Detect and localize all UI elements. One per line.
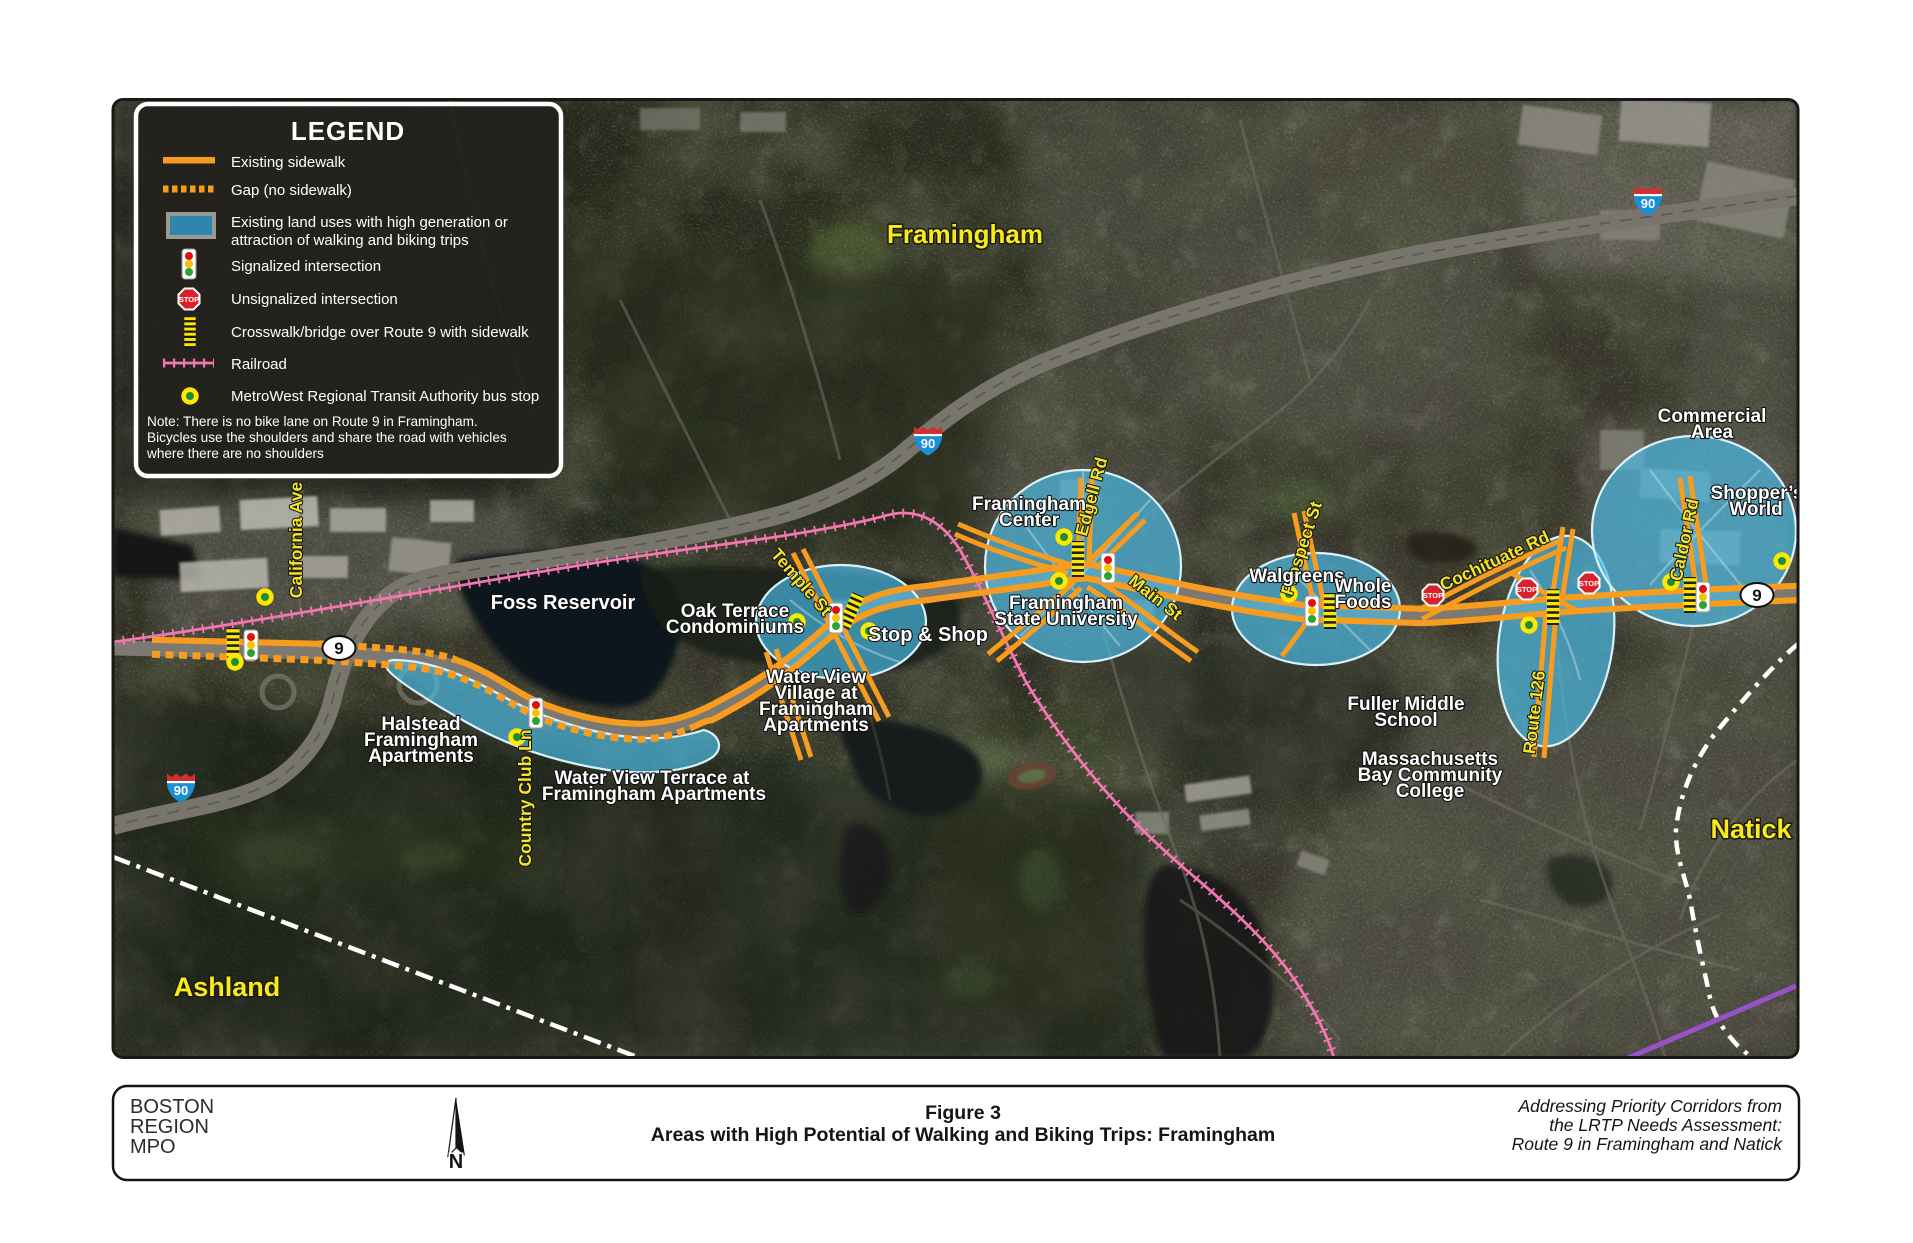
svg-text:California Ave: California Ave xyxy=(286,482,306,599)
svg-text:Country Club Ln: Country Club Ln xyxy=(515,729,535,866)
svg-text:Foss Reservoir: Foss Reservoir xyxy=(491,592,636,614)
svg-text:College: College xyxy=(1396,781,1465,802)
svg-text:where there are no shoulders: where there are no shoulders xyxy=(146,446,324,461)
svg-text:Existing land uses with high g: Existing land uses with high generation … xyxy=(231,214,508,231)
svg-text:Addressing Priority Corridors: Addressing Priority Corridors from xyxy=(1517,1096,1782,1116)
svg-text:the LRTP Needs Assessment:: the LRTP Needs Assessment: xyxy=(1549,1115,1782,1135)
svg-text:Center: Center xyxy=(999,510,1060,531)
svg-text:Existing sidewalk: Existing sidewalk xyxy=(231,154,346,171)
svg-text:School: School xyxy=(1374,710,1437,731)
svg-text:World: World xyxy=(1729,499,1782,520)
svg-text:Foods: Foods xyxy=(1335,592,1392,613)
svg-text:Stop & Shop: Stop & Shop xyxy=(868,624,988,646)
svg-text:Apartments: Apartments xyxy=(368,746,474,767)
svg-text:Natick: Natick xyxy=(1710,814,1792,844)
svg-text:Walgreens: Walgreens xyxy=(1249,566,1344,587)
svg-text:Signalized intersection: Signalized intersection xyxy=(231,258,381,275)
svg-text:MPO: MPO xyxy=(130,1136,176,1158)
svg-text:N: N xyxy=(449,1151,463,1173)
svg-text:BOSTON: BOSTON xyxy=(130,1096,214,1118)
svg-text:Condominiums: Condominiums xyxy=(666,617,804,638)
svg-text:LEGEND: LEGEND xyxy=(291,116,405,146)
svg-text:Ashland: Ashland xyxy=(174,972,281,1002)
svg-text:Bicycles use the shoulders and: Bicycles use the shoulders and share the… xyxy=(147,430,507,445)
svg-text:REGION: REGION xyxy=(130,1116,209,1138)
svg-text:Route 9 in Framingham and Nati: Route 9 in Framingham and Natick xyxy=(1512,1134,1784,1154)
svg-text:Areas with High Potential of W: Areas with High Potential of Walking and… xyxy=(651,1124,1275,1146)
svg-text:Gap (no sidewalk): Gap (no sidewalk) xyxy=(231,182,352,199)
svg-text:Apartments: Apartments xyxy=(763,715,869,736)
svg-text:Framingham Apartments: Framingham Apartments xyxy=(542,784,766,805)
svg-text:attraction of walking and biki: attraction of walking and biking trips xyxy=(231,232,469,249)
svg-text:Area: Area xyxy=(1691,422,1734,443)
svg-text:Unsignalized intersection: Unsignalized intersection xyxy=(231,291,398,308)
svg-text:Crosswalk/bridge over Route 9: Crosswalk/bridge over Route 9 with sidew… xyxy=(231,324,529,341)
svg-text:Figure 3: Figure 3 xyxy=(925,1102,1001,1124)
svg-text:Note: There is no bike lane on: Note: There is no bike lane on Route 9 i… xyxy=(147,414,478,429)
svg-text:Framingham: Framingham xyxy=(887,219,1043,249)
svg-text:Railroad: Railroad xyxy=(231,356,287,373)
svg-text:MetroWest Regional Transit Aut: MetroWest Regional Transit Authority bus… xyxy=(231,388,539,405)
svg-text:State University: State University xyxy=(994,609,1138,630)
